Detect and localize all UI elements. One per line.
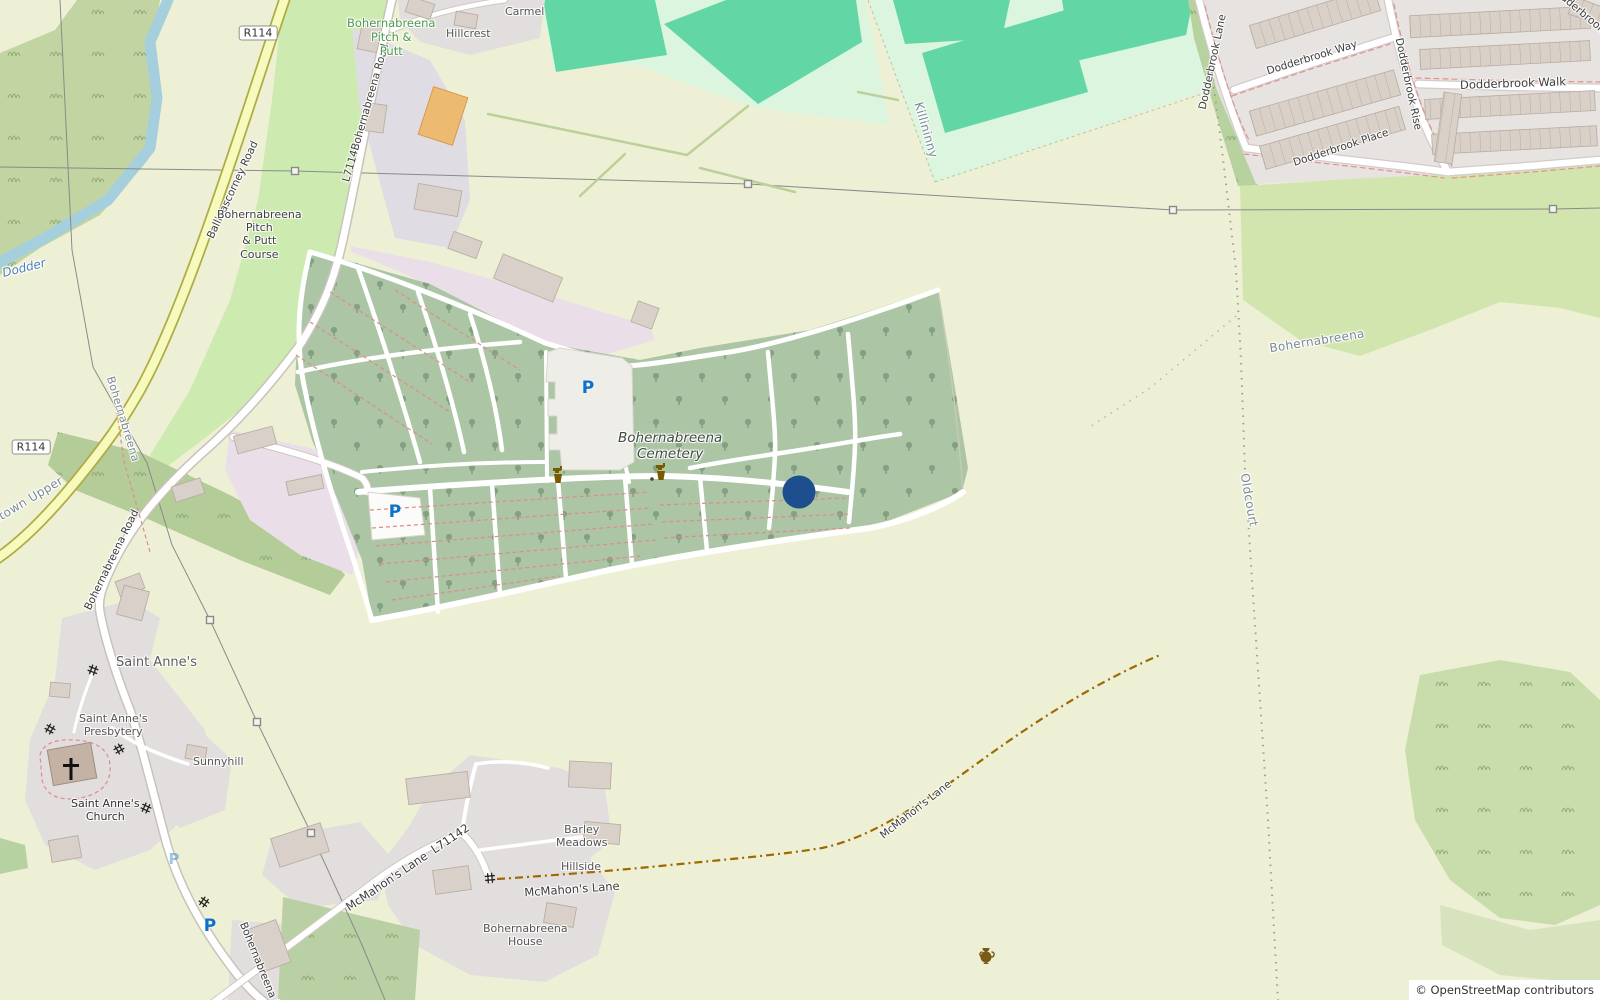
church-building	[47, 742, 97, 785]
selected-location-marker[interactable]	[783, 476, 816, 509]
map-attribution: © OpenStreetMap contributors	[1409, 980, 1600, 1000]
map-canvas[interactable]: Ballinascorney Road R114 R114 L7114Boher…	[0, 0, 1600, 1000]
parking-icon: P	[204, 916, 216, 936]
parking-icon: P	[389, 502, 401, 522]
parking-icon-private: P	[169, 850, 180, 868]
attribution-text[interactable]: © OpenStreetMap contributors	[1415, 983, 1594, 997]
parking-icon: P	[582, 378, 594, 398]
route-shield-r114: R114	[12, 440, 51, 455]
route-shield-r114: R114	[239, 26, 278, 41]
